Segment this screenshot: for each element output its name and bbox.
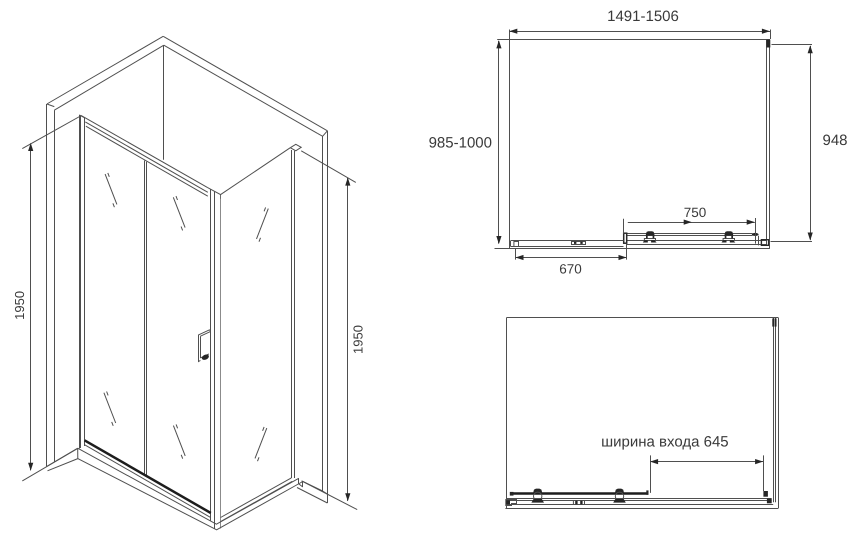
svg-text:1950: 1950 xyxy=(12,291,27,320)
svg-text:1950: 1950 xyxy=(351,325,366,354)
svg-text:948: 948 xyxy=(823,132,848,149)
svg-text:750: 750 xyxy=(684,205,707,220)
svg-text:670: 670 xyxy=(559,262,582,277)
svg-text:1491-1506: 1491-1506 xyxy=(607,8,679,25)
svg-text:985-1000: 985-1000 xyxy=(429,135,492,152)
svg-text:ширина входа 645: ширина входа 645 xyxy=(601,434,729,451)
